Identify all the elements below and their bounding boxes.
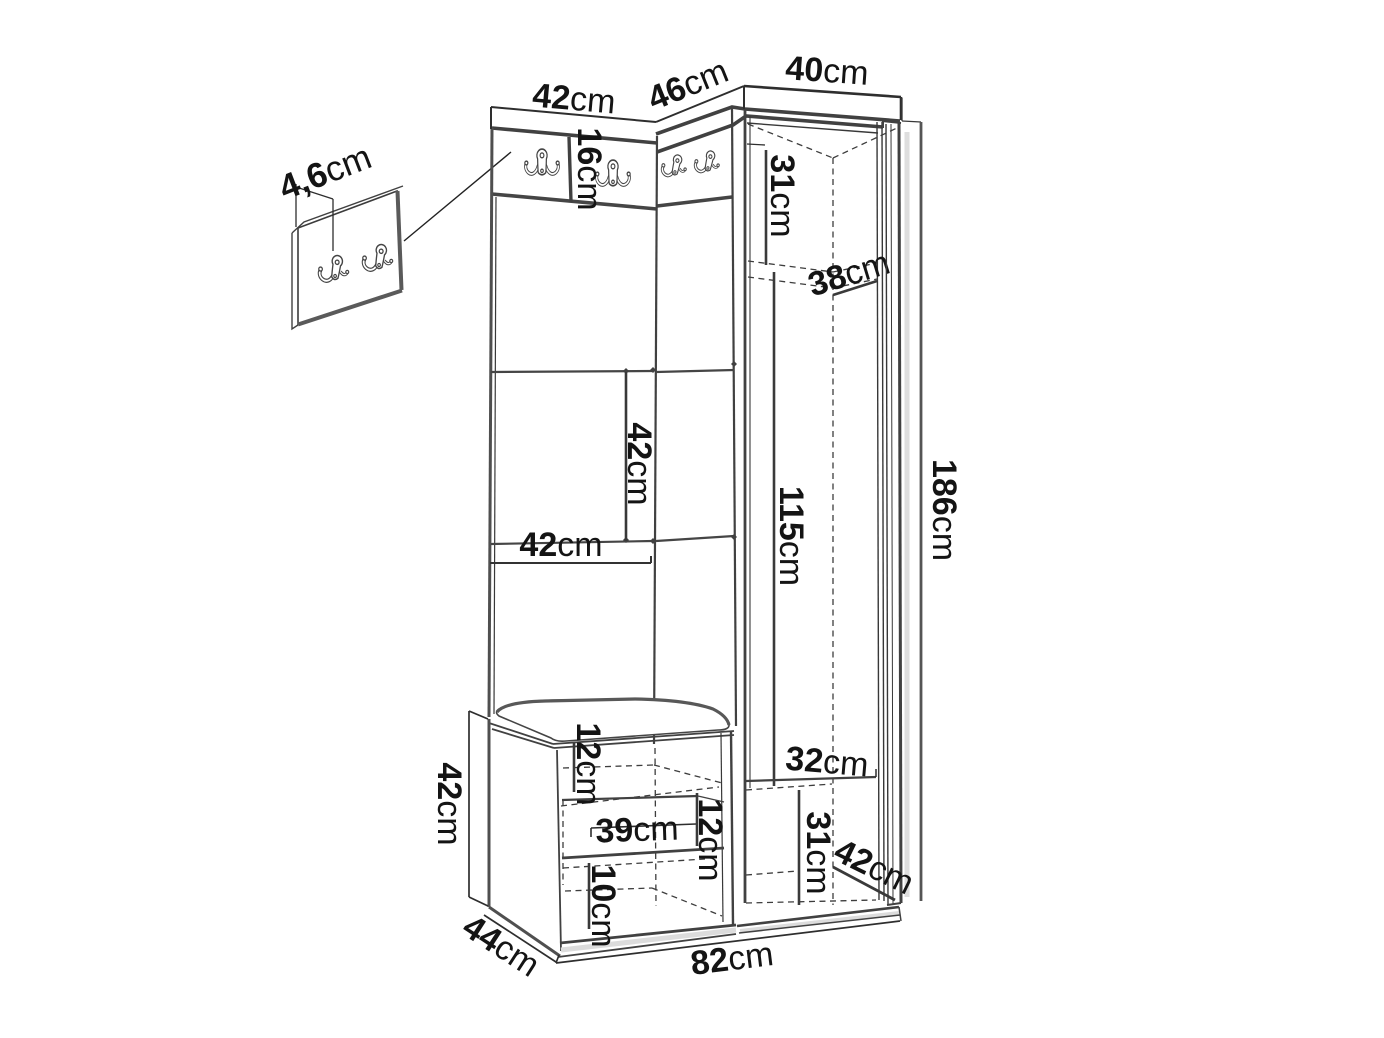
- svg-text:12cm: 12cm: [569, 722, 607, 805]
- svg-text:42cm: 42cm: [430, 762, 468, 845]
- svg-text:16cm: 16cm: [570, 127, 608, 210]
- svg-text:40cm: 40cm: [784, 49, 870, 93]
- svg-text:42cm: 42cm: [519, 526, 602, 564]
- svg-text:186cm: 186cm: [925, 459, 963, 561]
- svg-text:10cm: 10cm: [584, 864, 622, 947]
- svg-text:42cm: 42cm: [531, 76, 617, 121]
- svg-text:12cm: 12cm: [691, 798, 729, 881]
- svg-text:31cm: 31cm: [763, 154, 801, 237]
- svg-text:39cm: 39cm: [595, 810, 679, 851]
- svg-text:31cm: 31cm: [799, 811, 837, 894]
- svg-text:32cm: 32cm: [784, 739, 870, 784]
- svg-text:115cm: 115cm: [772, 486, 810, 586]
- svg-text:42cm: 42cm: [620, 422, 658, 505]
